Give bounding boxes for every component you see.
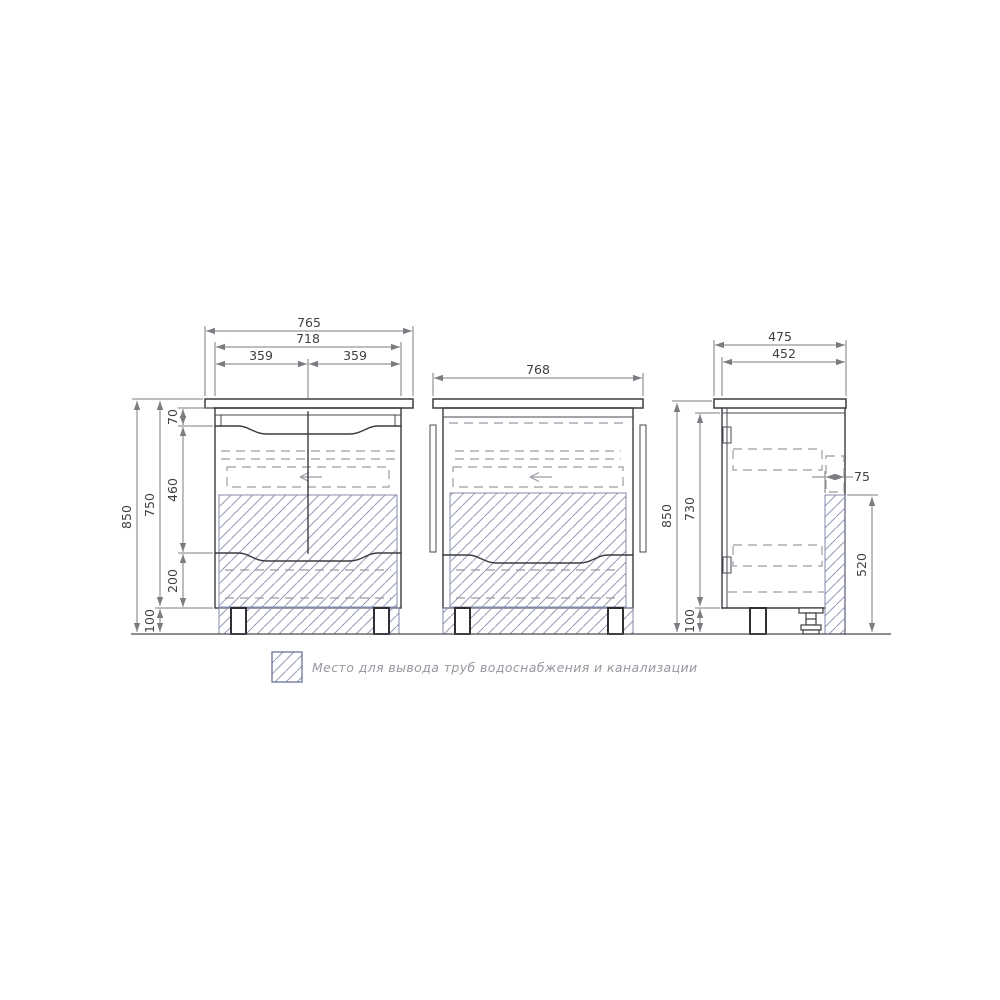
dimension-label: 452: [772, 346, 796, 361]
back-view: 768: [430, 362, 646, 634]
dimension-label: 460: [165, 478, 180, 502]
back-right-side-panel: [640, 425, 646, 552]
side-back-dashed-box: [826, 456, 844, 492]
vanity-cabinet-drawing: 765 718 359 359 850 750 70 460 200 100: [0, 0, 1000, 1000]
dimension-label: 75: [854, 469, 870, 484]
front-view: [205, 399, 413, 634]
back-countertop: [433, 399, 643, 408]
legend-hatch-swatch: [272, 652, 302, 682]
dimension-label: 850: [119, 505, 134, 529]
adjustable-foot: [799, 608, 823, 634]
dimension-label: 359: [249, 348, 273, 363]
side-upper-drawer-dashed: [733, 449, 822, 470]
front-left-leg: [231, 608, 246, 634]
drawer-direction-arrow-icon: [300, 473, 322, 482]
technical-drawing-page: 765 718 359 359 850 750 70 460 200 100: [0, 0, 1000, 1000]
extension-lines: [672, 340, 878, 608]
front-countertop: [205, 399, 413, 408]
legend-text: Место для вывода труб водоснабжения и ка…: [312, 660, 698, 675]
back-pipe-zone-hatch: [450, 493, 626, 607]
dimension-label: 750: [142, 493, 157, 517]
back-right-leg: [608, 608, 623, 634]
front-right-leg: [374, 608, 389, 634]
dimension-label: 70: [165, 409, 180, 425]
dimension-label: 200: [165, 569, 180, 593]
back-bottom-pipe-zone-hatch: [443, 608, 633, 634]
dimension-label: 765: [297, 315, 321, 330]
legend: Место для вывода труб водоснабжения и ка…: [272, 652, 698, 682]
dimension-label: 100: [682, 609, 697, 633]
side-countertop: [714, 399, 846, 408]
dimension-label: 359: [343, 348, 367, 363]
dimension-label: 730: [682, 497, 697, 521]
drawer-direction-arrow-icon: [530, 473, 552, 482]
dimension-label: 475: [768, 329, 792, 344]
side-pipe-zone-hatch: [825, 495, 845, 634]
dimension-label: 768: [526, 362, 550, 377]
dimension-label: 718: [296, 331, 320, 346]
dimension-label: 850: [659, 504, 674, 528]
side-view: 475 452 850 730 100 75 520: [659, 329, 878, 634]
side-lower-drawer-dashed: [733, 545, 822, 566]
back-left-leg: [455, 608, 470, 634]
dimension-label: 100: [142, 609, 157, 633]
side-front-leg: [750, 608, 766, 634]
back-left-side-panel: [430, 425, 436, 552]
dimension-label: 520: [854, 553, 869, 577]
